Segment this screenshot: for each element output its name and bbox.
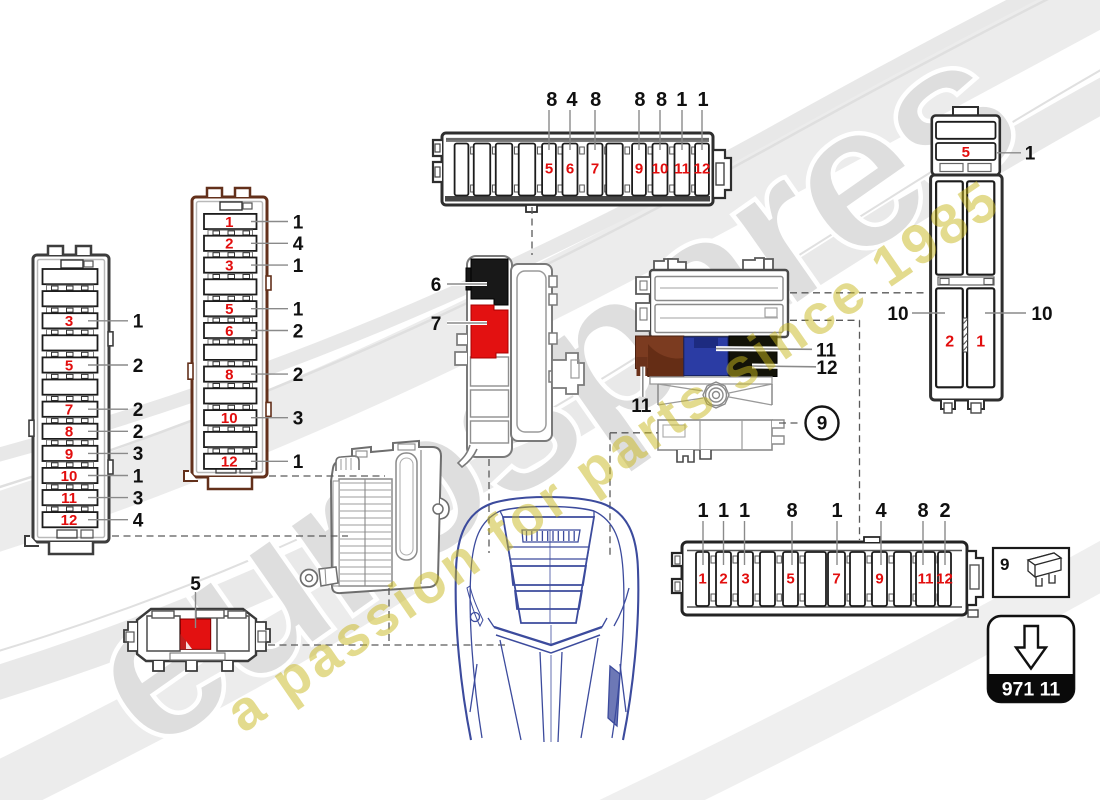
svg-text:12: 12 <box>61 512 78 529</box>
svg-text:12: 12 <box>221 454 238 471</box>
svg-text:1: 1 <box>976 333 985 350</box>
svg-text:5: 5 <box>190 574 201 595</box>
svg-text:1: 1 <box>697 500 708 522</box>
svg-text:2: 2 <box>133 422 144 443</box>
svg-text:9: 9 <box>65 446 73 463</box>
svg-text:2: 2 <box>293 321 304 342</box>
svg-text:1: 1 <box>1025 144 1036 165</box>
svg-text:2: 2 <box>719 570 727 587</box>
svg-text:2: 2 <box>133 400 144 421</box>
svg-text:12: 12 <box>694 160 711 177</box>
svg-text:5: 5 <box>545 160 553 177</box>
svg-text:8: 8 <box>590 89 601 111</box>
svg-text:4: 4 <box>293 234 304 255</box>
svg-text:8: 8 <box>917 500 928 522</box>
svg-text:1: 1 <box>293 256 304 277</box>
svg-text:4: 4 <box>875 500 887 522</box>
svg-text:10: 10 <box>221 410 238 427</box>
svg-text:4: 4 <box>566 89 578 111</box>
svg-text:8: 8 <box>656 89 667 111</box>
svg-text:12: 12 <box>816 358 837 379</box>
svg-text:12: 12 <box>936 570 953 587</box>
svg-text:3: 3 <box>133 444 144 465</box>
svg-text:5: 5 <box>786 570 794 587</box>
svg-text:3: 3 <box>225 258 233 275</box>
svg-text:6: 6 <box>566 160 574 177</box>
svg-text:8: 8 <box>225 367 233 384</box>
svg-text:4: 4 <box>133 511 144 532</box>
svg-text:1: 1 <box>293 212 304 233</box>
svg-text:971 11: 971 11 <box>1002 679 1061 701</box>
svg-text:8: 8 <box>786 500 797 522</box>
svg-text:3: 3 <box>741 570 749 587</box>
svg-text:6: 6 <box>225 323 233 340</box>
svg-text:5: 5 <box>65 357 73 374</box>
svg-text:9: 9 <box>817 414 828 435</box>
svg-text:9: 9 <box>1000 555 1009 574</box>
svg-text:8: 8 <box>634 89 645 111</box>
svg-text:2: 2 <box>939 500 950 522</box>
svg-text:11: 11 <box>61 490 77 507</box>
svg-text:1: 1 <box>293 300 304 321</box>
svg-text:1: 1 <box>718 500 729 522</box>
svg-text:7: 7 <box>431 314 442 335</box>
svg-text:1: 1 <box>225 214 233 231</box>
svg-text:10: 10 <box>887 304 908 325</box>
svg-text:2: 2 <box>293 365 304 386</box>
svg-text:5: 5 <box>225 301 233 318</box>
svg-text:3: 3 <box>293 409 304 430</box>
svg-text:9: 9 <box>635 160 643 177</box>
svg-text:6: 6 <box>431 275 442 296</box>
svg-text:7: 7 <box>65 402 73 419</box>
svg-text:3: 3 <box>133 488 144 509</box>
svg-text:10: 10 <box>1031 304 1052 325</box>
svg-text:11: 11 <box>918 570 934 587</box>
svg-text:7: 7 <box>591 160 599 177</box>
svg-text:10: 10 <box>61 468 78 485</box>
svg-text:3: 3 <box>65 313 73 330</box>
svg-text:1: 1 <box>698 89 709 111</box>
svg-text:8: 8 <box>546 89 557 111</box>
svg-text:11: 11 <box>674 160 690 177</box>
svg-text:2: 2 <box>133 356 144 377</box>
svg-text:1: 1 <box>133 466 144 487</box>
svg-text:1: 1 <box>676 89 687 111</box>
svg-text:1: 1 <box>293 452 304 473</box>
svg-text:1: 1 <box>698 570 706 587</box>
svg-text:9: 9 <box>875 570 883 587</box>
svg-text:1: 1 <box>739 500 750 522</box>
svg-text:8: 8 <box>65 424 73 441</box>
svg-text:10: 10 <box>652 160 669 177</box>
svg-text:1: 1 <box>133 312 144 333</box>
svg-text:2: 2 <box>945 333 954 350</box>
svg-text:1: 1 <box>831 500 842 522</box>
svg-text:5: 5 <box>962 144 970 161</box>
svg-text:2: 2 <box>225 236 233 253</box>
svg-text:7: 7 <box>832 570 840 587</box>
